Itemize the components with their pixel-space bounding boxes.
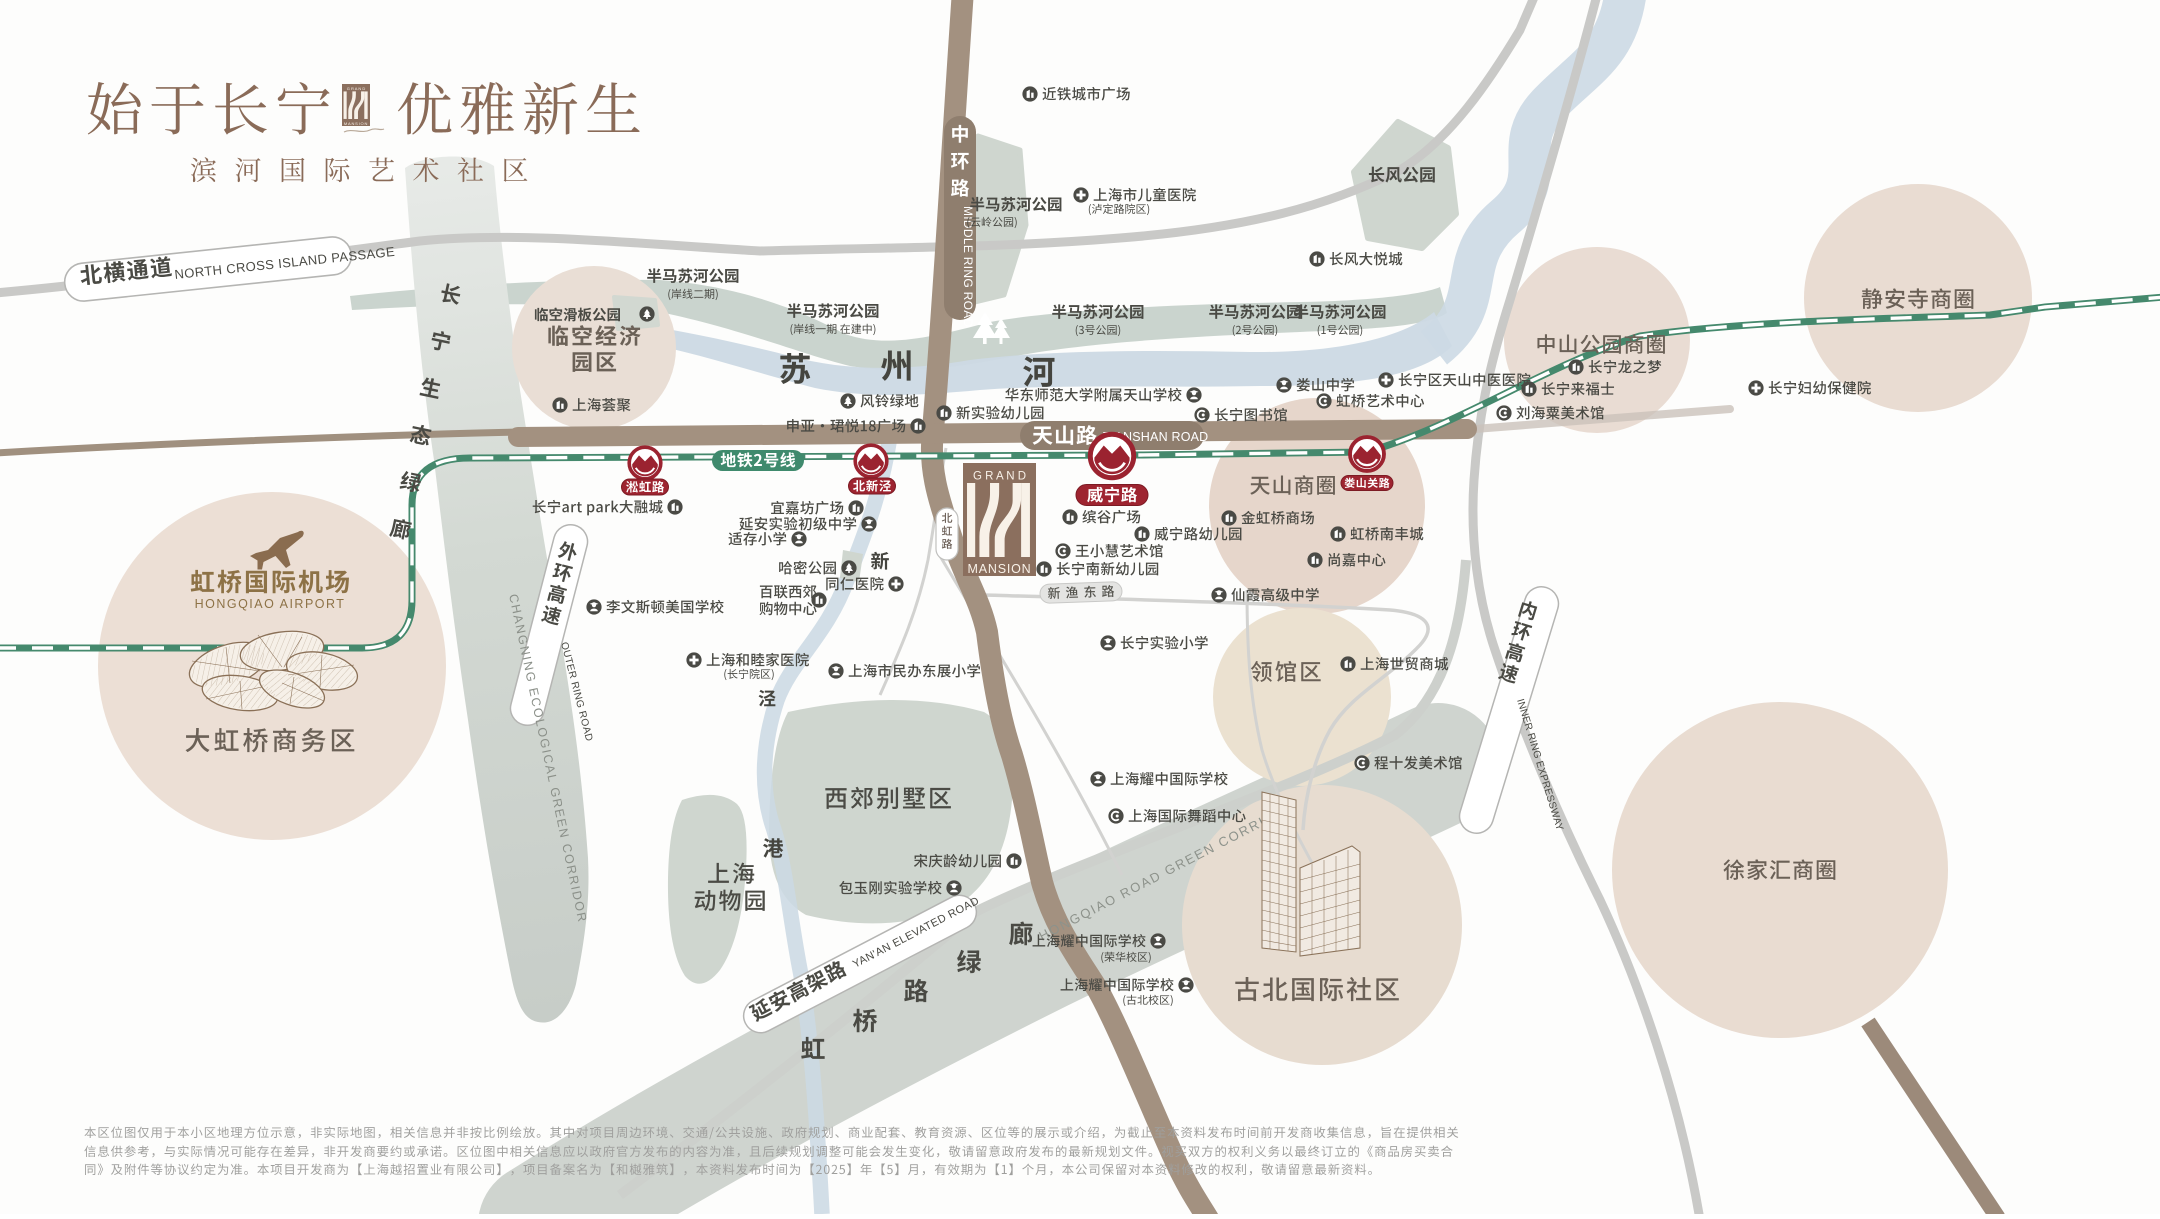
svg-text:MANSION: MANSION [344, 121, 368, 126]
svg-text:MANSION: MANSION [968, 562, 1032, 576]
svg-text:G R A N D: G R A N D [973, 470, 1026, 482]
svg-text:HONGQIAO AIRPORT: HONGQIAO AIRPORT [195, 597, 346, 611]
svg-text:G R A N D: G R A N D [347, 86, 366, 91]
